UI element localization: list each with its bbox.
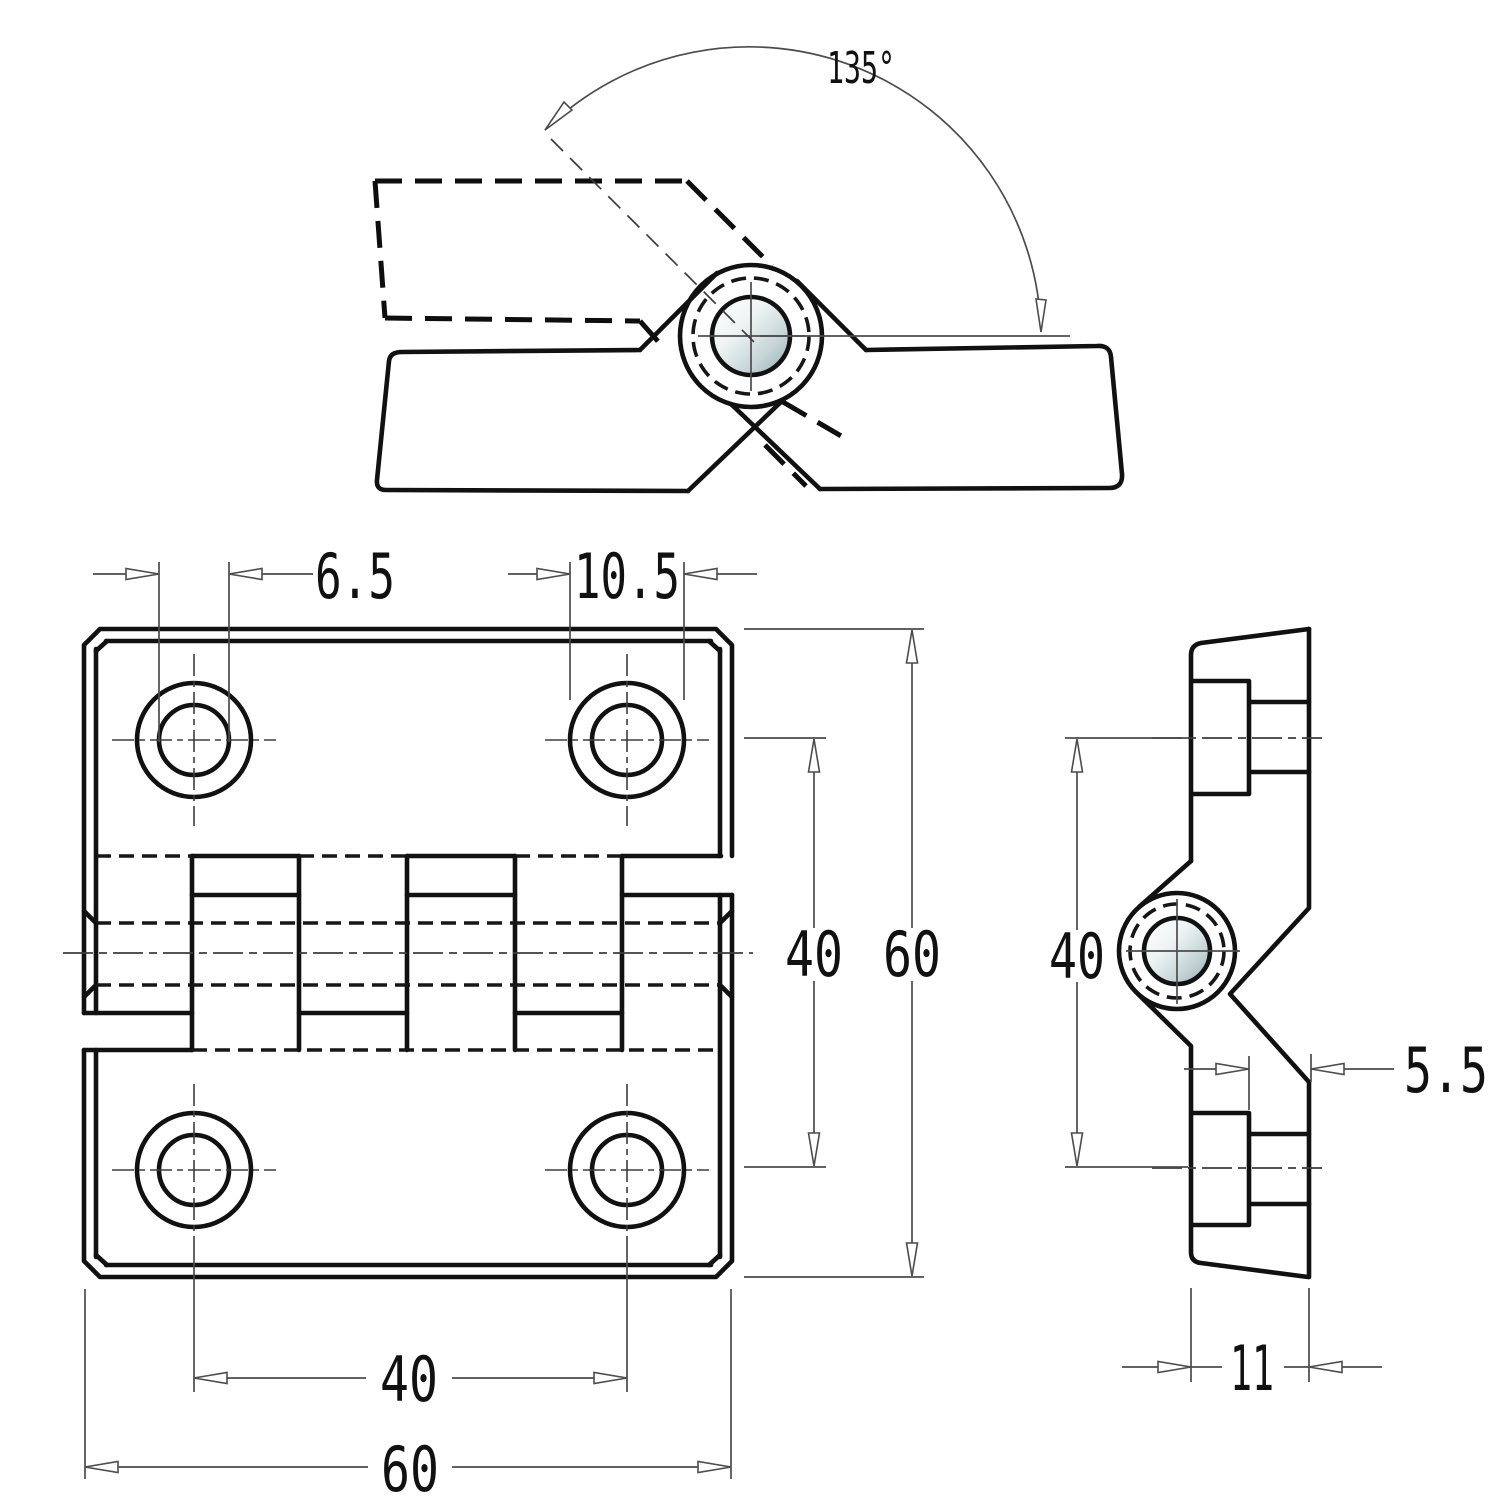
dimension-bottom-widths: 40 60 xyxy=(85,1256,731,1500)
dimension-right-heights: 40 60 xyxy=(744,629,941,1277)
angle-arrow-right xyxy=(1036,299,1046,332)
front-hole-spacing-vertical-label: 40 xyxy=(785,918,843,991)
hole-bottom-right xyxy=(545,1084,709,1256)
top-view-opened-hinge: 135° xyxy=(375,43,1122,491)
side-leaf-thickness-label: 5.5 xyxy=(1404,1034,1488,1107)
front-width-label: 60 xyxy=(381,1433,439,1500)
front-height-label: 60 xyxy=(883,918,941,991)
angle-dimension-label: 135° xyxy=(827,43,895,94)
hole-bottom-left xyxy=(112,1084,276,1256)
knuckle-interleave xyxy=(63,856,753,1050)
side-total-thickness-label: 11 xyxy=(1230,1332,1274,1405)
front-view-hinge-plate: 6.5 10.5 40 60 40 60 xyxy=(63,540,941,1500)
dimension-total-thickness: 11 xyxy=(1122,1288,1382,1405)
angle-arrow-left xyxy=(545,102,572,130)
dimension-leaf-thickness: 5.5 xyxy=(1184,1034,1488,1110)
angle-arc xyxy=(545,47,1041,332)
side-view-hinge-profile: 40 5.5 11 xyxy=(1049,629,1488,1405)
front-hole-diameter-label: 6.5 xyxy=(315,540,395,613)
screw-holes xyxy=(112,654,709,1256)
angle-leg-open xyxy=(551,139,757,345)
side-knuckle xyxy=(1119,893,1240,1009)
front-hole-spacing-horizontal-label: 40 xyxy=(380,1343,438,1416)
side-hole-spacing-label: 40 xyxy=(1049,920,1105,993)
angle-dimension: 135° xyxy=(545,43,1070,345)
right-leaf-outline xyxy=(731,281,1122,489)
drawing-page: 135° xyxy=(0,0,1500,1500)
hole-top-left xyxy=(112,654,276,826)
front-counterbore-diameter-label: 10.5 xyxy=(574,540,680,613)
hinge-technical-drawing: 135° xyxy=(0,0,1500,1500)
